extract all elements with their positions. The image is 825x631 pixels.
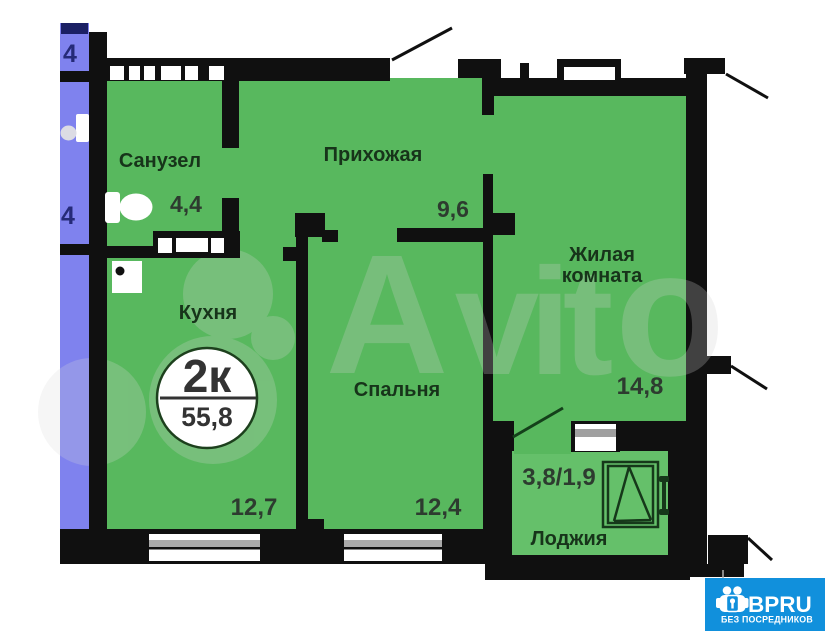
svg-text:12,7: 12,7	[231, 494, 278, 521]
svg-text:комната: комната	[562, 265, 643, 287]
svg-text:Прихожая: Прихожая	[324, 144, 423, 166]
svg-text:Санузел: Санузел	[119, 150, 201, 172]
svg-text:9,6: 9,6	[437, 196, 469, 222]
svg-text:14,8: 14,8	[617, 373, 664, 400]
svg-text:4: 4	[61, 202, 75, 230]
svg-text:4,4: 4,4	[170, 191, 202, 217]
svg-text:3,8/1,9: 3,8/1,9	[522, 464, 595, 491]
svg-text:2к: 2к	[183, 350, 233, 402]
svg-text:BPRU: BPRU	[748, 592, 812, 617]
svg-text:v: v	[455, 237, 540, 407]
svg-text:4: 4	[63, 40, 77, 68]
svg-text:55,8: 55,8	[181, 402, 233, 432]
svg-text:Лоджия: Лоджия	[531, 528, 608, 550]
svg-text:Спальня: Спальня	[354, 379, 440, 401]
svg-text:Кухня: Кухня	[179, 302, 237, 324]
svg-text:12,4: 12,4	[415, 494, 462, 521]
svg-text:Жилая: Жилая	[568, 244, 635, 266]
svg-text:БЕЗ ПОСРЕДНИКОВ: БЕЗ ПОСРЕДНИКОВ	[721, 615, 813, 625]
